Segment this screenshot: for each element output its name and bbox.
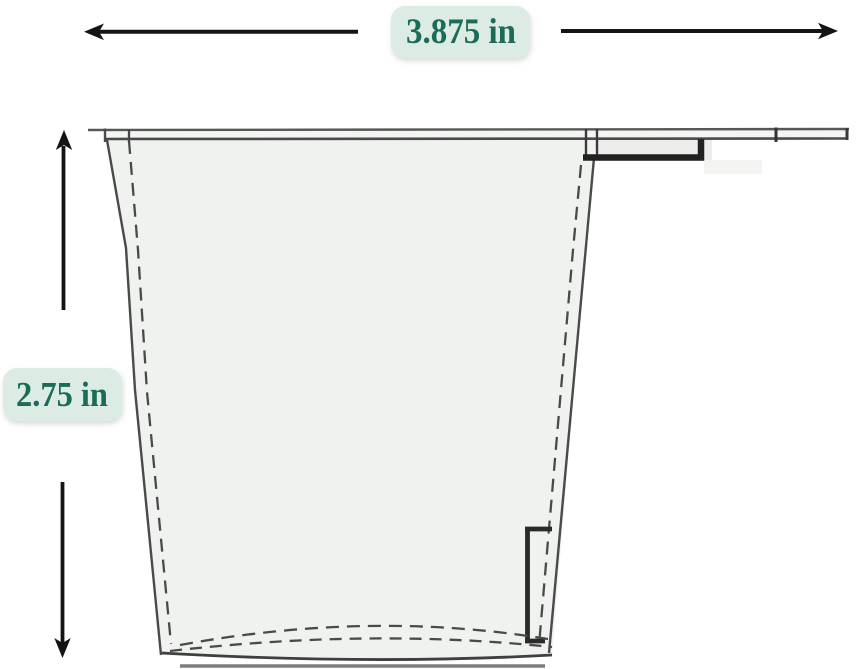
- svg-text:3.875 in: 3.875 in: [406, 11, 516, 51]
- svg-text:2.75 in: 2.75 in: [16, 375, 108, 414]
